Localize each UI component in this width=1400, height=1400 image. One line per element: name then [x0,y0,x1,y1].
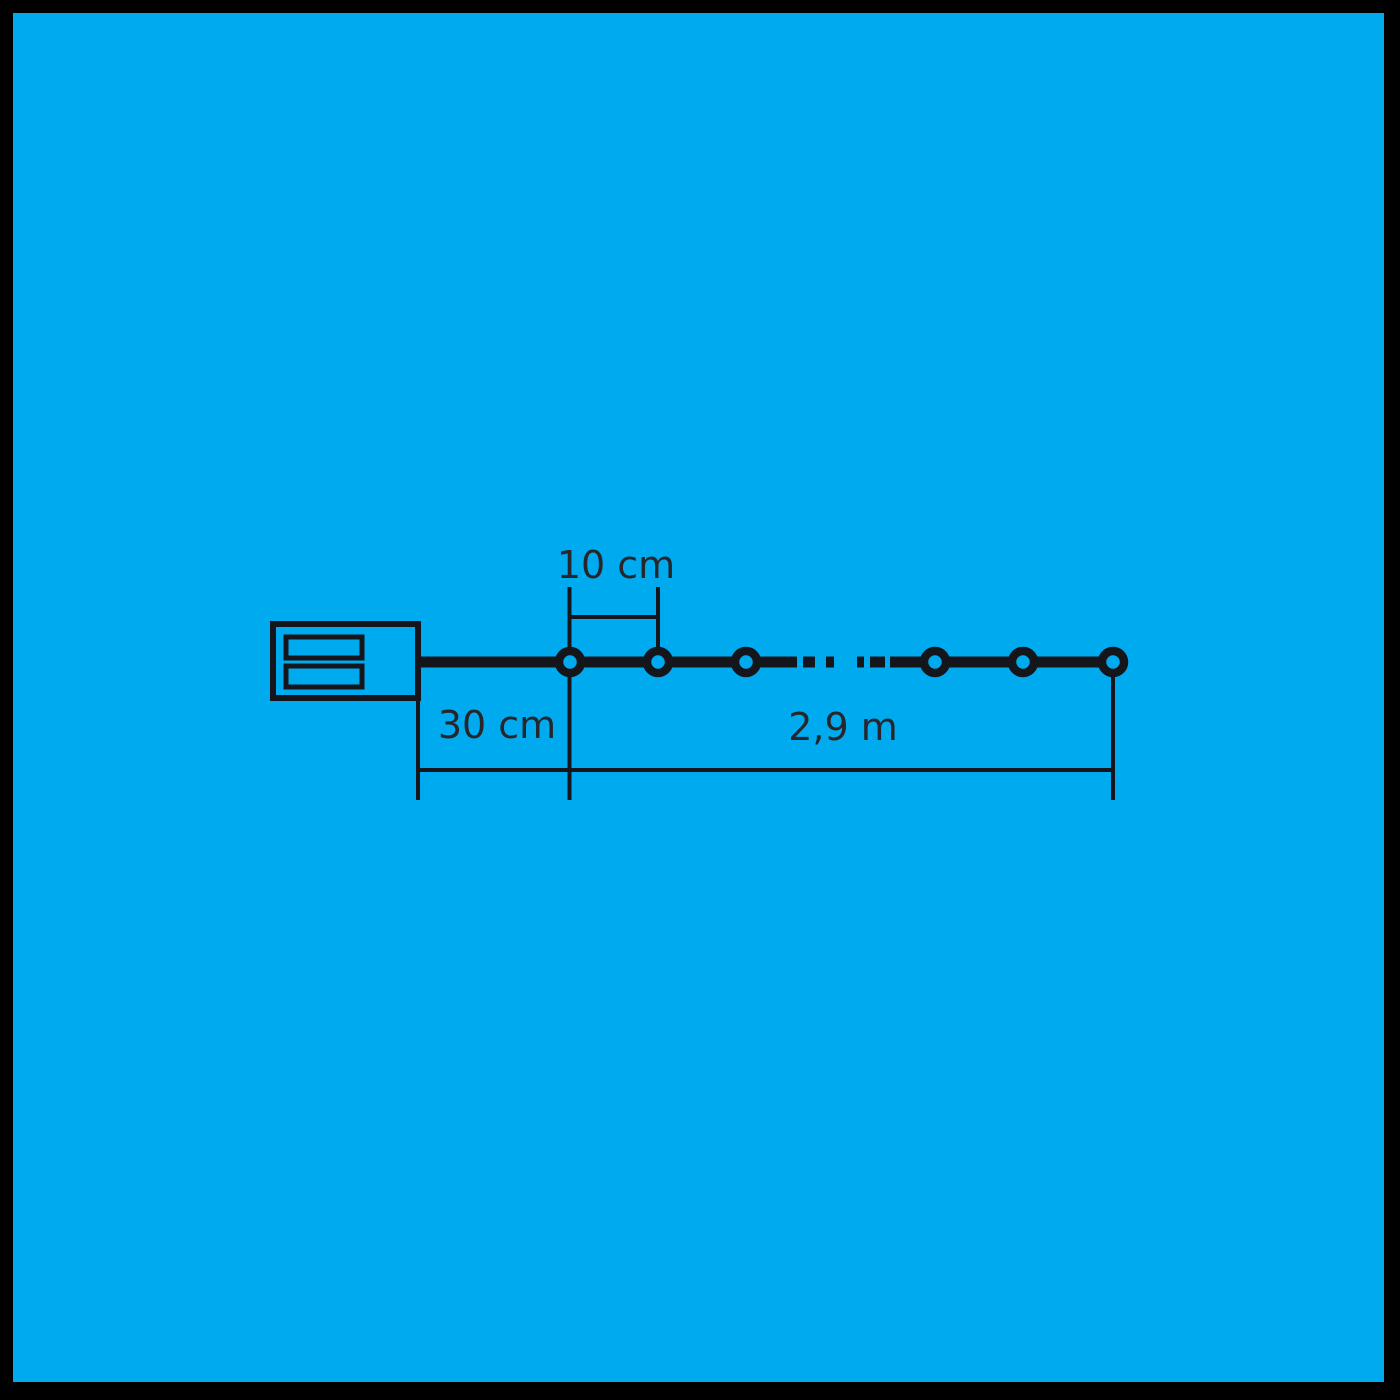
wire-dash [857,657,864,668]
bulb-icon [647,651,669,673]
spacing-label: 10 cm [557,543,675,587]
bulb-icon [1102,651,1124,673]
canvas-background [13,13,1384,1382]
wire-dash [803,657,815,668]
wire-dash [826,657,834,668]
lead-length-label: 30 cm [438,703,556,747]
light-string-dimension-diagram: 10 cm 30 cm 2,9 m [0,0,1400,1400]
wire-dash [870,657,885,668]
bulb-icon [924,651,946,673]
lit-length-label: 2,9 m [788,705,898,749]
diagram-stage: 10 cm 30 cm 2,9 m [0,0,1400,1400]
bulb-icon [1012,651,1034,673]
bulb-icon [559,651,581,673]
bulb-icon [735,651,757,673]
